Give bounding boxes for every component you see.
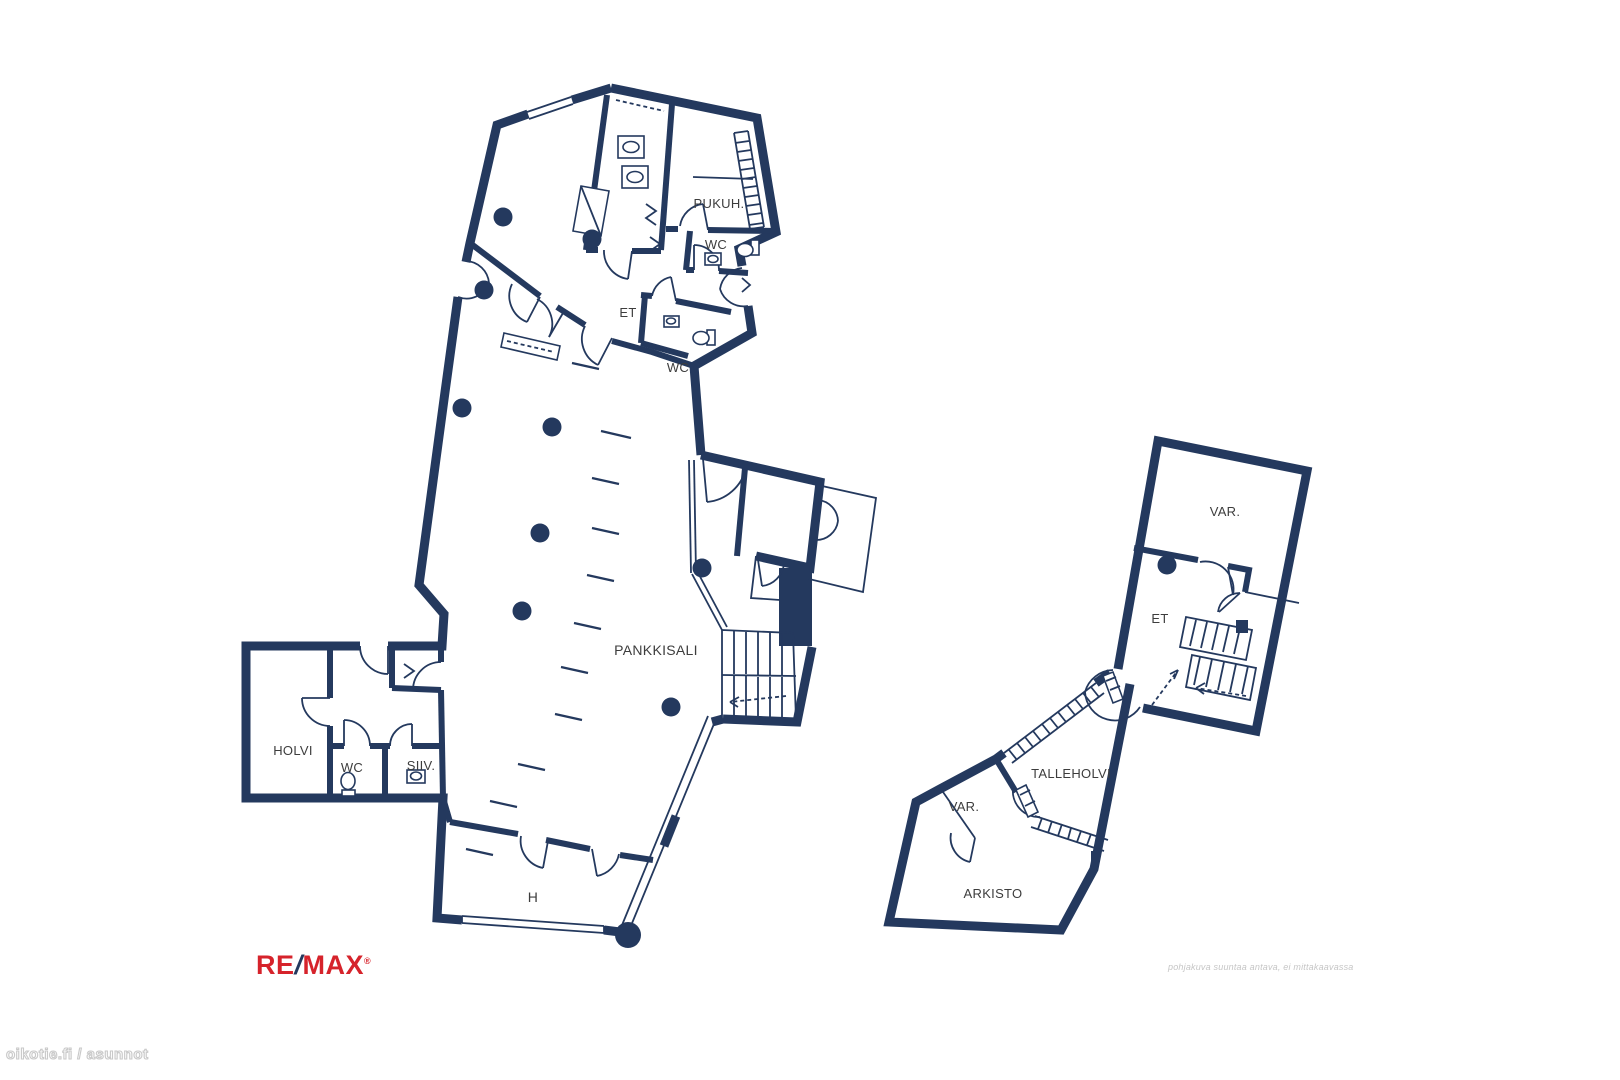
- disclaimer-text: pohjakuva suuntaa antava, ei mittakaavas…: [1168, 962, 1354, 972]
- hall-dashes: [466, 363, 631, 855]
- logo-max: MAX: [303, 950, 365, 980]
- exterior-walls: [246, 88, 820, 933]
- watermark-text: oikotie.fi / asunnot: [6, 1046, 149, 1063]
- room-label-talleholvi: TALLEHOLVI: [1031, 766, 1111, 781]
- room-label-arkisto: ARKISTO: [964, 886, 1023, 901]
- room-label-var-upper: VAR.: [1210, 504, 1241, 519]
- room-label-et-main: ET: [619, 305, 636, 320]
- structural-column: [1158, 556, 1177, 575]
- logo-registered-mark: ®: [364, 956, 371, 966]
- room-label-holvi: HOLVI: [273, 743, 313, 758]
- room-label-h: H: [528, 889, 538, 905]
- logo-re: RE: [256, 950, 295, 980]
- room-label-wc-mid: WC: [667, 360, 689, 375]
- room-label-var-lower: VAR.: [949, 799, 980, 814]
- right-building: [889, 441, 1307, 930]
- main-building: [246, 88, 876, 948]
- room-label-et-right: ET: [1151, 611, 1168, 626]
- doors-right: [951, 561, 1240, 862]
- room-label-wc-top: WC: [705, 237, 727, 252]
- floorplan-drawing: PUKUH. WC ET WC PANKKISALI HOLVI WC SIIV…: [0, 0, 1620, 1080]
- room-label-siiv: SIIV.: [407, 758, 435, 773]
- shaft-solid: [779, 568, 812, 646]
- stairs-right: [1152, 617, 1256, 705]
- room-label-wc-annex: WC: [341, 760, 363, 775]
- floorplan-page: PUKUH. WC ET WC PANKKISALI HOLVI WC SIIV…: [0, 0, 1620, 1080]
- room-label-pukuh: PUKUH.: [694, 196, 745, 211]
- remax-logo: RE/MAX®: [256, 950, 371, 981]
- room-label-pankkisali: PANKKISALI: [614, 642, 698, 658]
